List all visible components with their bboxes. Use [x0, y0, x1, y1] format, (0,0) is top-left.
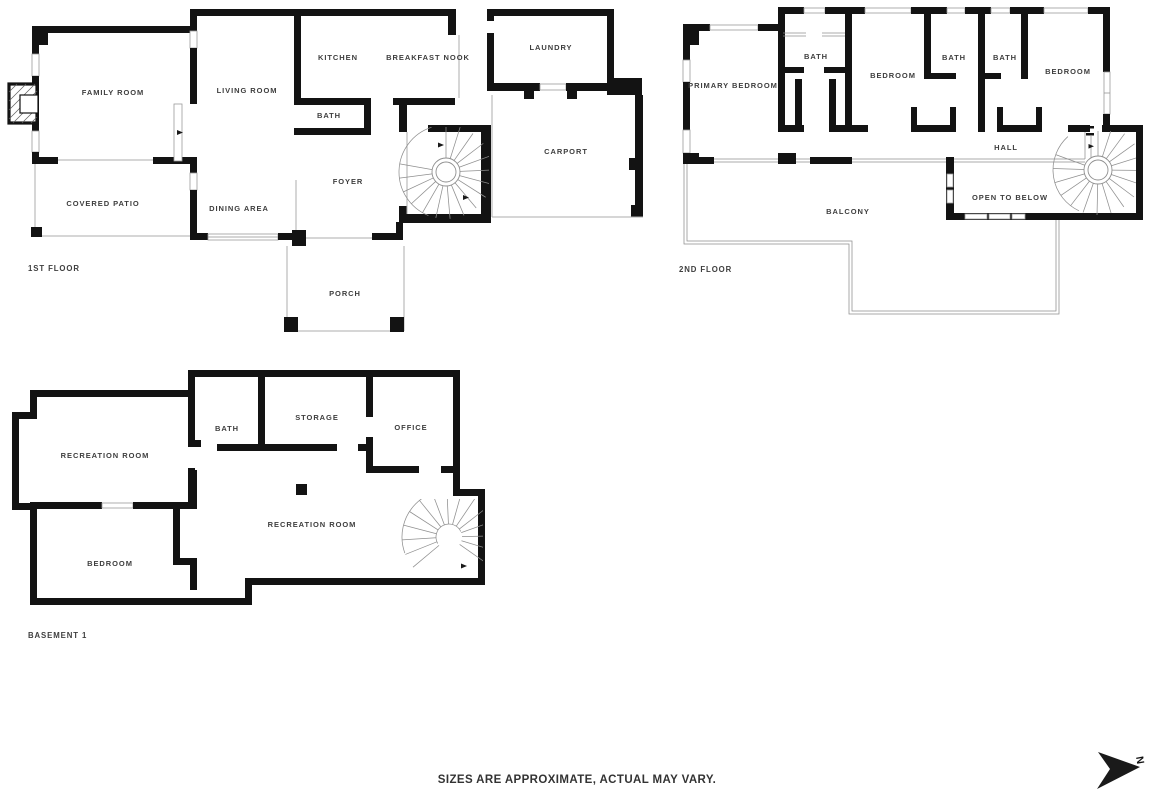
room-label-breakfast-nook: BREAKFAST NOOK — [386, 53, 470, 62]
floorplan-sheet: FAMILY ROOM LIVING ROOM KITCHEN BREAKFAS… — [0, 0, 1152, 794]
room-label-bedroom-middle: BEDROOM — [870, 71, 916, 80]
room-label-bedroom-right: BEDROOM — [1045, 67, 1091, 76]
room-label-hall: HALL — [994, 143, 1018, 152]
basement-walls — [12, 370, 485, 605]
room-label-laundry: LAUNDRY — [529, 43, 572, 52]
room-label-kitchen: KITCHEN — [318, 53, 358, 62]
room-label-family-room: FAMILY ROOM — [82, 88, 145, 97]
room-label-living-room: LIVING ROOM — [217, 86, 278, 95]
basement-plan: RECREATION ROOM BATH STORAGE OFFICE RECR… — [12, 370, 496, 640]
room-label-covered-patio: COVERED PATIO — [66, 199, 139, 208]
north-arrow: N — [1097, 752, 1146, 789]
basement-room-labels: RECREATION ROOM BATH STORAGE OFFICE RECR… — [61, 413, 428, 568]
room-label-storage: STORAGE — [295, 413, 339, 422]
north-label: N — [1133, 755, 1146, 765]
second-floor-room-labels: PRIMARY BEDROOM BATH BEDROOM BATH BATH B… — [688, 52, 1091, 216]
room-label-recreation-room-main: RECREATION ROOM — [268, 520, 357, 529]
room-label-foyer: FOYER — [333, 177, 364, 186]
room-label-office: OFFICE — [394, 423, 427, 432]
stair-direction-arrow — [461, 564, 467, 569]
floor-title-2nd-floor: 2ND FLOOR — [679, 265, 732, 274]
second-floor-walls — [683, 7, 1143, 314]
room-label-open-to-below: OPEN TO BELOW — [972, 193, 1048, 202]
room-label-recreation-room-upper: RECREATION ROOM — [61, 451, 150, 460]
room-label-bath-right: BATH — [993, 53, 1017, 62]
room-label-bath-left: BATH — [942, 53, 966, 62]
room-label-primary-bedroom: PRIMARY BEDROOM — [688, 81, 778, 90]
first-floor-plan: FAMILY ROOM LIVING ROOM KITCHEN BREAKFAS… — [9, 9, 643, 332]
room-label-bath-1f: BATH — [317, 111, 341, 120]
room-label-bath-basement: BATH — [215, 424, 239, 433]
room-label-bedroom-basement: BEDROOM — [87, 559, 133, 568]
room-label-carport: CARPORT — [544, 147, 588, 156]
room-label-dining-area: DINING AREA — [209, 204, 269, 213]
floor-title-1st-floor: 1ST FLOOR — [28, 264, 80, 273]
disclaimer-text: SIZES ARE APPROXIMATE, ACTUAL MAY VARY. — [438, 774, 716, 786]
stair-direction-arrow — [438, 143, 444, 148]
fireplace — [9, 84, 38, 123]
floor-title-basement: BASEMENT 1 — [28, 631, 87, 640]
room-label-primary-bath: BATH — [804, 52, 828, 61]
room-label-porch: PORCH — [329, 289, 361, 298]
floorplan-canvas: FAMILY ROOM LIVING ROOM KITCHEN BREAKFAS… — [0, 0, 1152, 794]
room-label-balcony: BALCONY — [826, 207, 870, 216]
first-floor-room-labels: FAMILY ROOM LIVING ROOM KITCHEN BREAKFAS… — [66, 43, 588, 298]
second-floor-plan: PRIMARY BEDROOM BATH BEDROOM BATH BATH B… — [679, 7, 1143, 314]
